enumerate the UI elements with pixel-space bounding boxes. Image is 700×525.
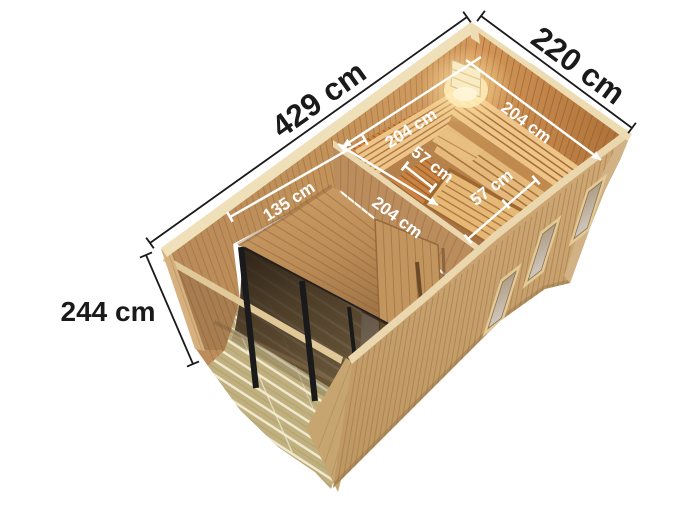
svg-text:244 cm: 244 cm	[61, 296, 156, 327]
